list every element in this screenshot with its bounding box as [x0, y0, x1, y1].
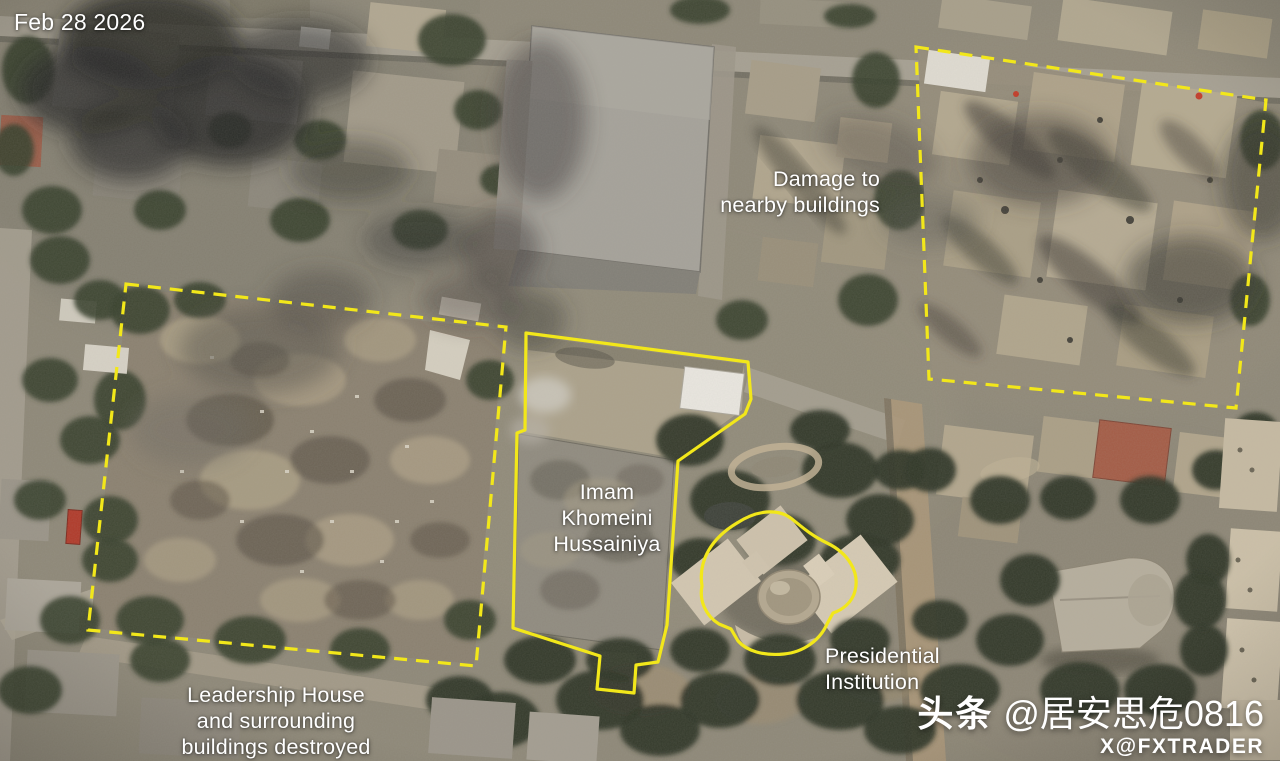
- watermark-platform-badge: 头条: [917, 693, 993, 734]
- annotation-leadership: Leadership House and surrounding buildin…: [155, 683, 397, 760]
- watermark-handle: @居安思危0816: [1003, 693, 1264, 734]
- date-label: Feb 28 2026: [14, 9, 145, 37]
- annotation-presidential: Presidential Institution: [825, 644, 940, 696]
- annotated-satellite-image: Feb 28 2026 Damage to nearby buildings I…: [0, 0, 1280, 761]
- vignette: [0, 0, 1280, 761]
- watermark: 头条@居安思危0816 X@FXTRADER: [917, 694, 1264, 759]
- annotation-damage-nearby: Damage to nearby buildings: [720, 167, 880, 219]
- annotation-hussainiya: Imam Khomeini Hussainiya: [527, 480, 687, 557]
- watermark-x-handle: X@FXTRADER: [917, 735, 1264, 759]
- satellite-scene: [0, 0, 1280, 761]
- watermark-handle-row: 头条@居安思危0816: [917, 694, 1264, 734]
